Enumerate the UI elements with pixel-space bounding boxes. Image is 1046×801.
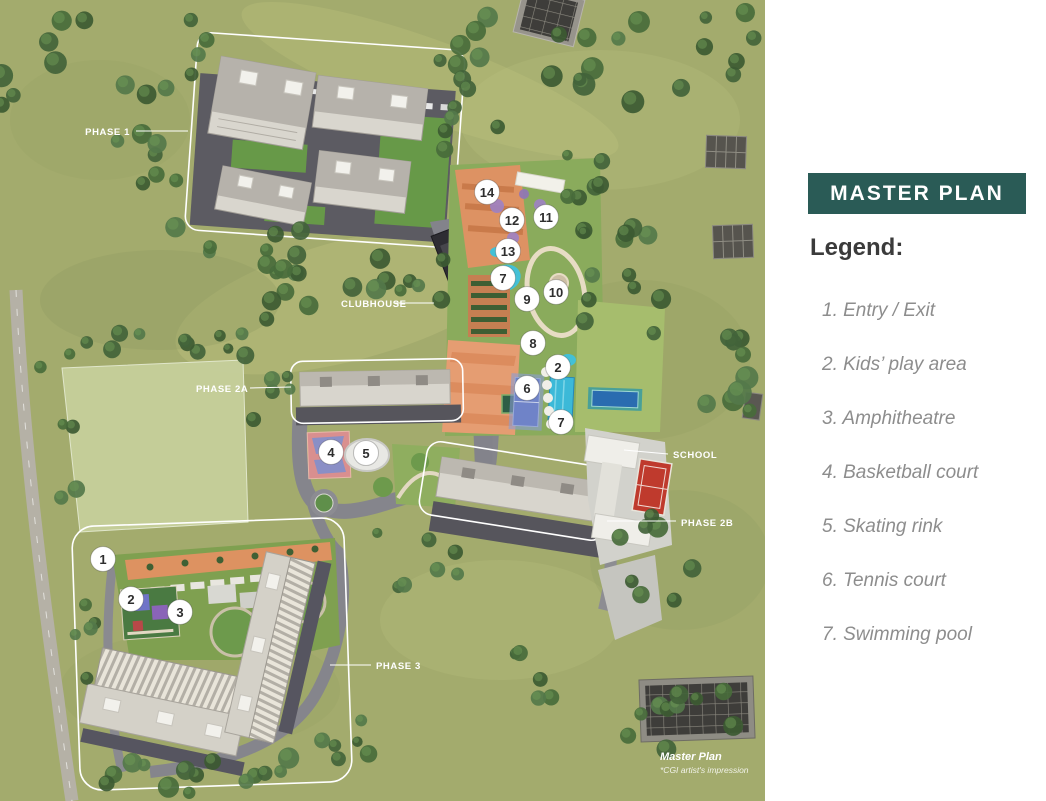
legend-item: 5. Skating rink [822, 516, 1046, 538]
legend-item: 3. Amphitheatre [822, 408, 1046, 430]
legend-item: 6. Tennis court [822, 570, 1046, 592]
phase1-building-1 [208, 56, 316, 149]
svg-text:3: 3 [176, 605, 183, 620]
legend-list: 1. Entry / Exit2. Kids’ play area3. Amph… [822, 300, 1046, 646]
master-plan-title-box: MASTER PLAN [808, 173, 1026, 214]
map-marker-5: 5 [354, 441, 379, 466]
map-marker-4: 4 [319, 440, 344, 465]
map-marker-2: 2 [119, 587, 144, 612]
svg-text:14: 14 [480, 185, 495, 200]
legend-item: 7. Swimming pool [822, 624, 1046, 646]
map-label: PHASE 2A [196, 384, 248, 395]
svg-text:2: 2 [127, 592, 134, 607]
map-label: CLUBHOUSE [341, 299, 407, 310]
svg-text:6: 6 [523, 381, 530, 396]
site-map-svg: PHASE 1CLUBHOUSEPHASE 2ASCHOOLPHASE 2BPH… [0, 0, 765, 801]
map-label: PHASE 1 [85, 127, 130, 138]
site-map: PHASE 1CLUBHOUSEPHASE 2ASCHOOLPHASE 2BPH… [0, 0, 765, 801]
svg-text:8: 8 [529, 336, 536, 351]
svg-text:1: 1 [99, 552, 106, 567]
footnote-title: Master Plan [660, 751, 722, 763]
phase2a-building [300, 370, 451, 407]
master-plan-page: PHASE 1CLUBHOUSEPHASE 2ASCHOOLPHASE 2BPH… [0, 0, 1046, 801]
map-marker-6: 6 [515, 376, 540, 401]
map-marker-7: 7 [549, 410, 574, 435]
svg-text:7: 7 [557, 415, 564, 430]
legend-item: 4. Basketball court [822, 462, 1046, 484]
map-marker-11: 11 [534, 205, 559, 230]
map-label: PHASE 2B [681, 518, 733, 529]
svg-text:7: 7 [499, 271, 506, 286]
svg-text:5: 5 [362, 446, 369, 461]
legend-heading: Legend: [810, 234, 1046, 262]
svg-text:4: 4 [327, 445, 335, 460]
map-label: PHASE 3 [376, 661, 421, 672]
page-title: MASTER PLAN [830, 182, 1004, 206]
legend-item: 1. Entry / Exit [822, 300, 1046, 322]
svg-text:2: 2 [554, 360, 561, 375]
phase1-building-4 [313, 151, 411, 214]
map-marker-7: 7 [491, 266, 516, 291]
map-marker-1: 1 [91, 547, 116, 572]
map-marker-9: 9 [515, 287, 540, 312]
legend-item: 2. Kids’ play area [822, 354, 1046, 376]
legend-panel: MASTER PLAN Legend: 1. Entry / Exit2. Ki… [765, 0, 1046, 801]
footnote-note: *CGI artist's impression [660, 765, 749, 775]
svg-text:11: 11 [539, 210, 553, 225]
map-marker-14: 14 [475, 180, 500, 205]
svg-text:13: 13 [501, 244, 515, 259]
svg-text:10: 10 [549, 285, 563, 300]
map-marker-13: 13 [496, 239, 521, 264]
svg-text:9: 9 [523, 292, 530, 307]
map-marker-10: 10 [544, 280, 569, 305]
map-label: SCHOOL [673, 450, 717, 461]
map-marker-8: 8 [521, 331, 546, 356]
map-marker-3: 3 [168, 600, 193, 625]
svg-text:12: 12 [505, 213, 519, 228]
map-marker-2: 2 [546, 355, 571, 380]
map-marker-12: 12 [500, 208, 525, 233]
